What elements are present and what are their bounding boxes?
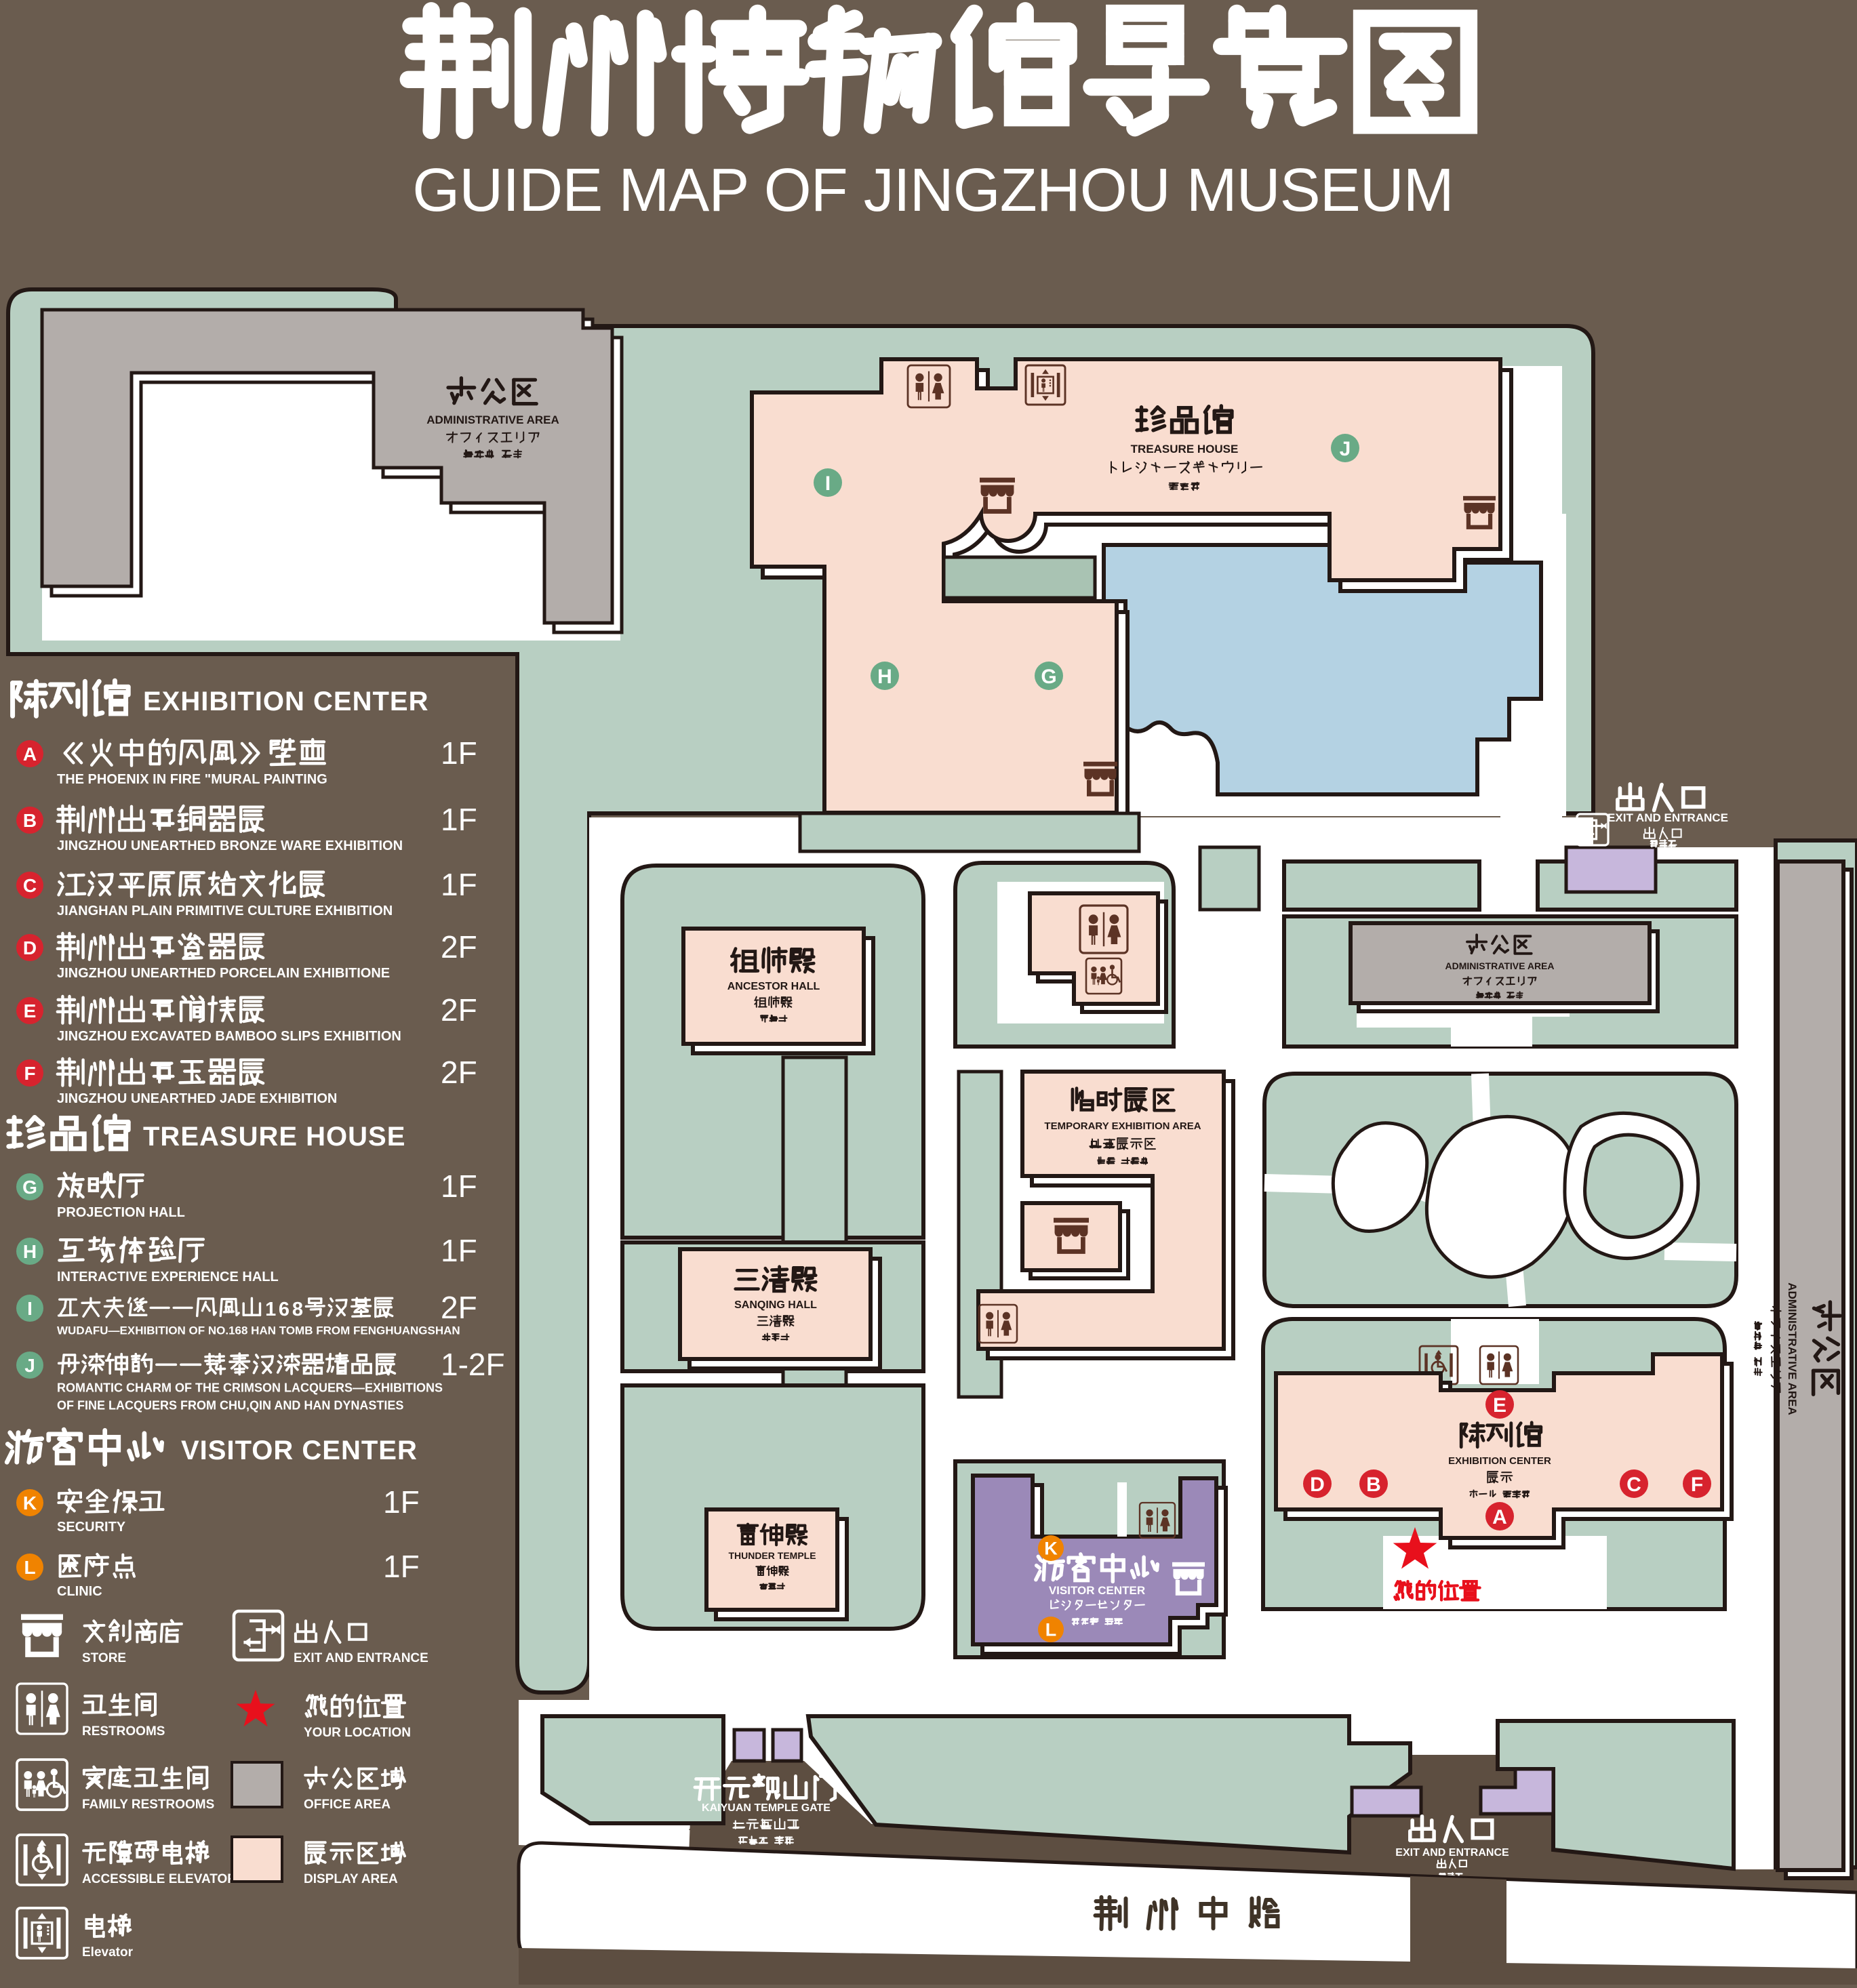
svg-text:EXHIBITION CENTER: EXHIBITION CENTER xyxy=(1448,1455,1551,1467)
svg-text:L: L xyxy=(1045,1620,1057,1640)
svg-text:A: A xyxy=(23,744,37,765)
svg-text:EXIT AND ENTRANCE: EXIT AND ENTRANCE xyxy=(294,1651,428,1665)
svg-text:JINGZHOU UNEARTHED PORCELAIN E: JINGZHOU UNEARTHED PORCELAIN EXHIBITIONE xyxy=(57,966,390,981)
svg-text:2F: 2F xyxy=(441,929,477,965)
svg-text:G: G xyxy=(22,1177,37,1198)
svg-text:EXIT AND ENTRANCE: EXIT AND ENTRANCE xyxy=(1395,1847,1509,1859)
svg-text:1F: 1F xyxy=(383,1484,420,1520)
svg-text:DISPLAY AREA: DISPLAY AREA xyxy=(304,1872,398,1886)
svg-text:1F: 1F xyxy=(441,735,477,771)
svg-text:1F: 1F xyxy=(383,1549,420,1584)
svg-text:J: J xyxy=(24,1355,35,1376)
svg-text:ADMINISTRATIVE AREA: ADMINISTRATIVE AREA xyxy=(426,413,559,426)
svg-text:1F: 1F xyxy=(441,867,477,902)
svg-text:INTERACTIVE EXPERIENCE HALL: INTERACTIVE EXPERIENCE HALL xyxy=(57,1270,279,1284)
svg-text:K: K xyxy=(23,1493,37,1514)
svg-text:OFFICE AREA: OFFICE AREA xyxy=(304,1798,391,1812)
svg-text:I: I xyxy=(825,472,831,495)
svg-text:VISITOR CENTER: VISITOR CENTER xyxy=(181,1436,418,1465)
svg-text:TREASURE HOUSE: TREASURE HOUSE xyxy=(1131,443,1239,455)
svg-text:WUDAFU—EXHIBITION OF NO.168 HA: WUDAFU—EXHIBITION OF NO.168 HAN TOMB FRO… xyxy=(57,1324,460,1337)
svg-text:1-2F: 1-2F xyxy=(441,1347,505,1382)
svg-text:G: G xyxy=(1041,666,1056,688)
svg-text:JINGZHOU UNEARTHED BRONZE WARE: JINGZHOU UNEARTHED BRONZE WARE EXHIBITIO… xyxy=(57,838,403,853)
svg-text:THE PHOENIX IN FIRE "MURAL PAI: THE PHOENIX IN FIRE "MURAL PAINTING xyxy=(57,772,327,787)
svg-text:6: 6 xyxy=(279,1299,289,1320)
svg-text:B: B xyxy=(23,810,37,831)
svg-text:A: A xyxy=(1492,1506,1507,1528)
svg-text:STORE: STORE xyxy=(82,1651,126,1665)
svg-text:CLINIC: CLINIC xyxy=(57,1584,102,1599)
svg-text:THUNDER TEMPLE: THUNDER TEMPLE xyxy=(728,1550,816,1561)
svg-text:JINGZHOU EXCAVATED BAMBOO SLIP: JINGZHOU EXCAVATED BAMBOO SLIPS EXHIBITI… xyxy=(57,1029,401,1044)
svg-text:1F: 1F xyxy=(441,802,477,837)
svg-text:JINGZHOU UNEARTHED JADE EXHIBI: JINGZHOU UNEARTHED JADE EXHIBITION xyxy=(57,1091,337,1106)
svg-text:GUIDE MAP OF JINGZHOU MUSEUM: GUIDE MAP OF JINGZHOU MUSEUM xyxy=(412,157,1453,224)
svg-text:H: H xyxy=(23,1241,37,1262)
svg-text:L: L xyxy=(24,1557,35,1578)
svg-text:ADMINISTRATIVE AREA: ADMINISTRATIVE AREA xyxy=(1445,960,1555,971)
svg-text:1: 1 xyxy=(265,1299,276,1320)
svg-text:FAMILY RESTROOMS: FAMILY RESTROOMS xyxy=(82,1798,214,1812)
svg-text:F: F xyxy=(1691,1474,1703,1496)
svg-text:J: J xyxy=(1340,438,1351,460)
svg-text:E: E xyxy=(24,1000,37,1021)
svg-text:C: C xyxy=(1626,1474,1641,1496)
svg-text:EXHIBITION CENTER: EXHIBITION CENTER xyxy=(143,687,428,716)
svg-text:2F: 2F xyxy=(441,1290,477,1325)
svg-text:TEMPORARY EXHIBITION AREA: TEMPORARY EXHIBITION AREA xyxy=(1044,1120,1201,1132)
svg-text:YOUR LOCATION: YOUR LOCATION xyxy=(304,1726,411,1740)
svg-text:1F: 1F xyxy=(441,1233,477,1268)
svg-text:RESTROOMS: RESTROOMS xyxy=(82,1724,165,1739)
svg-text:JIANGHAN PLAIN PRIMITIVE CULTU: JIANGHAN PLAIN PRIMITIVE CULTURE EXHIBIT… xyxy=(57,904,393,918)
svg-text:SANQING HALL: SANQING HALL xyxy=(734,1299,817,1311)
svg-text:PROJECTION HALL: PROJECTION HALL xyxy=(57,1205,185,1220)
svg-text:ADMINISTRATIVE AREA: ADMINISTRATIVE AREA xyxy=(1786,1282,1799,1415)
svg-text:KAIYUAN TEMPLE GATE: KAIYUAN TEMPLE GATE xyxy=(702,1802,831,1814)
svg-text:D: D xyxy=(1310,1474,1325,1496)
svg-text:H: H xyxy=(877,666,892,688)
svg-text:TREASURE HOUSE: TREASURE HOUSE xyxy=(143,1122,405,1152)
svg-text:ANCESTOR HALL: ANCESTOR HALL xyxy=(727,981,820,992)
svg-text:ACCESSIBLE ELEVATOR: ACCESSIBLE ELEVATOR xyxy=(82,1872,237,1886)
svg-text:VISITOR CENTER: VISITOR CENTER xyxy=(1049,1584,1145,1597)
svg-text:EXIT AND ENTRANCE: EXIT AND ENTRANCE xyxy=(1608,811,1728,824)
svg-text:C: C xyxy=(23,875,37,896)
svg-text:1F: 1F xyxy=(441,1169,477,1204)
svg-text:B: B xyxy=(1366,1474,1381,1496)
svg-text:K: K xyxy=(1044,1539,1058,1559)
svg-text:F: F xyxy=(24,1063,35,1084)
svg-text:SECURITY: SECURITY xyxy=(57,1520,126,1535)
svg-text:Elevator: Elevator xyxy=(82,1945,134,1960)
svg-text:E: E xyxy=(1493,1394,1506,1417)
svg-text:OF FINE LACQUERS FROM CHU,QIN: OF FINE LACQUERS FROM CHU,QIN AND HAN DY… xyxy=(57,1399,403,1413)
svg-text:2F: 2F xyxy=(441,1055,477,1090)
svg-text:I: I xyxy=(27,1298,33,1319)
svg-text:2F: 2F xyxy=(441,992,477,1028)
svg-text:8: 8 xyxy=(292,1299,303,1320)
svg-text:D: D xyxy=(23,937,37,958)
svg-text:ROMANTIC CHARM OF THE CRIMSON: ROMANTIC CHARM OF THE CRIMSON LACQUERS—E… xyxy=(57,1381,443,1395)
